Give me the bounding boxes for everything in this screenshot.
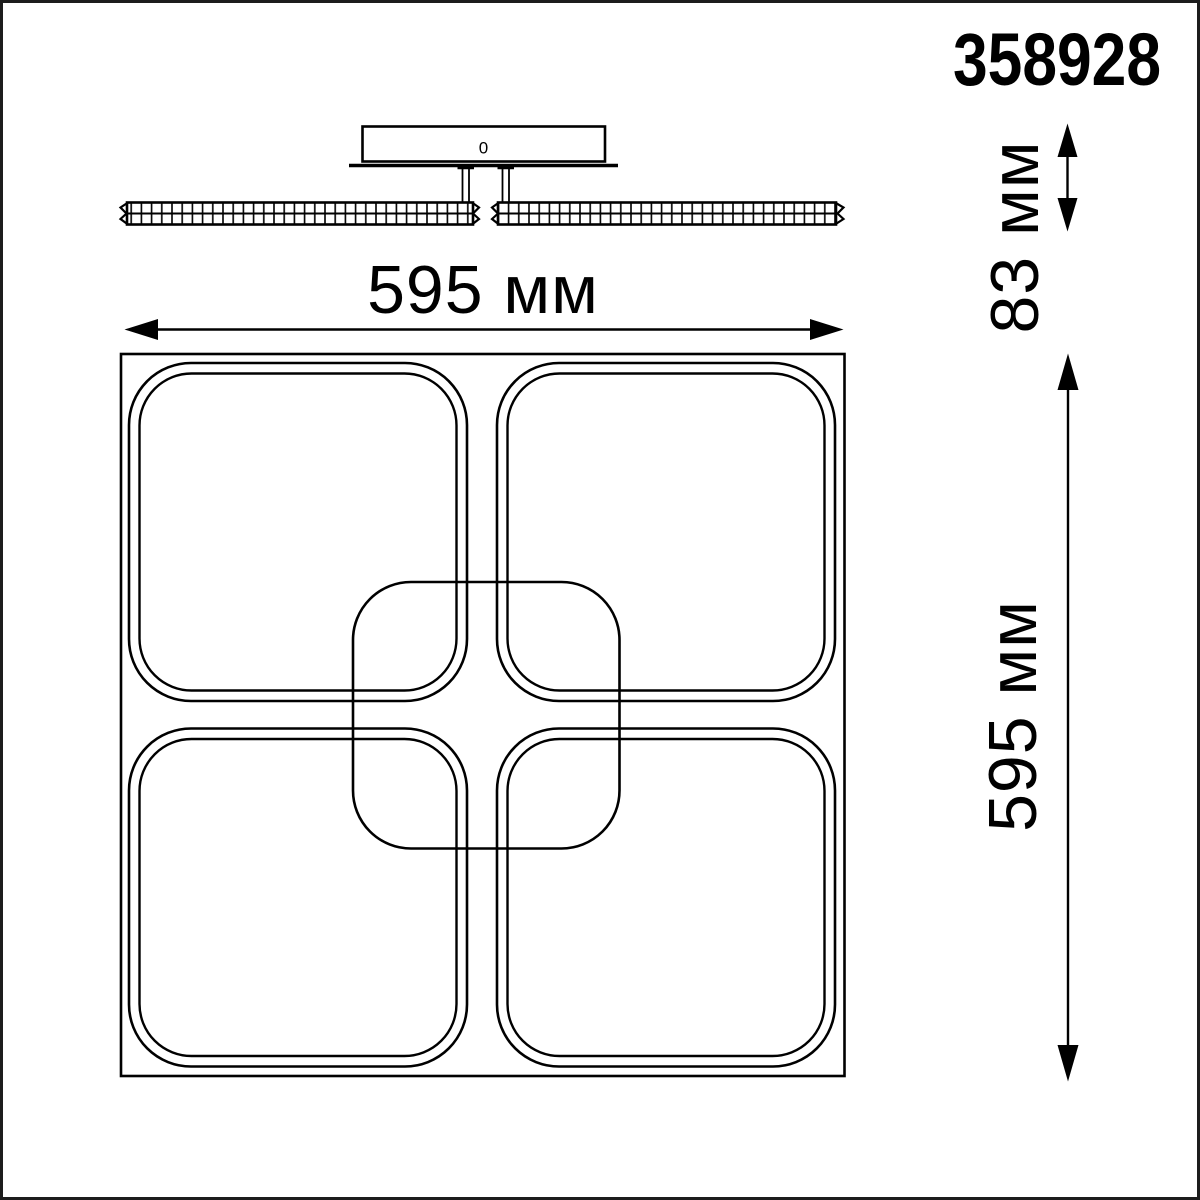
module-bottom-left-inner — [140, 739, 457, 1056]
arrowhead-right-icon — [810, 319, 844, 340]
drawing-sheet: 0 — [0, 0, 1200, 1200]
module-top-left-inner — [140, 374, 457, 691]
module-bottom-right-inner — [508, 739, 825, 1056]
depth-dimension-label: 83 мм — [977, 140, 1053, 333]
technical-drawing: 0 — [3, 3, 1197, 1197]
arrowhead-up-small-icon — [1058, 124, 1078, 158]
light-bar-right — [492, 203, 844, 225]
module-top-right — [497, 363, 835, 701]
width-dimension-label: 595 мм — [367, 252, 599, 328]
arrowhead-down-small-icon — [1058, 198, 1078, 232]
arrowhead-down-icon — [1058, 1045, 1079, 1082]
module-bottom-right-outer — [497, 729, 835, 1067]
height-dimension-label: 595 мм — [975, 600, 1051, 832]
module-top-right-inner — [508, 374, 825, 691]
module-top-right-outer — [497, 363, 835, 701]
module-bottom-right — [497, 729, 835, 1067]
arrowhead-up-icon — [1058, 354, 1079, 391]
width-dimension: 595 мм — [125, 252, 844, 340]
stem-right — [498, 168, 515, 203]
canopy-mark-label: 0 — [479, 139, 488, 158]
light-bar-left — [121, 203, 480, 225]
product-code: 358928 — [953, 18, 1161, 101]
fixture-outline — [121, 354, 845, 1076]
arrowhead-left-icon — [125, 319, 159, 340]
module-top-left-outer — [129, 363, 467, 701]
side-view: 0 — [121, 127, 844, 225]
module-top-left — [129, 363, 467, 701]
module-bottom-left-outer — [129, 729, 467, 1067]
top-view — [121, 354, 845, 1076]
module-bottom-left — [129, 729, 467, 1067]
module-center — [353, 582, 620, 849]
height-dimension: 595 мм — [975, 354, 1079, 1082]
depth-dimension: 83 мм — [977, 124, 1078, 334]
stem-left — [458, 168, 475, 203]
